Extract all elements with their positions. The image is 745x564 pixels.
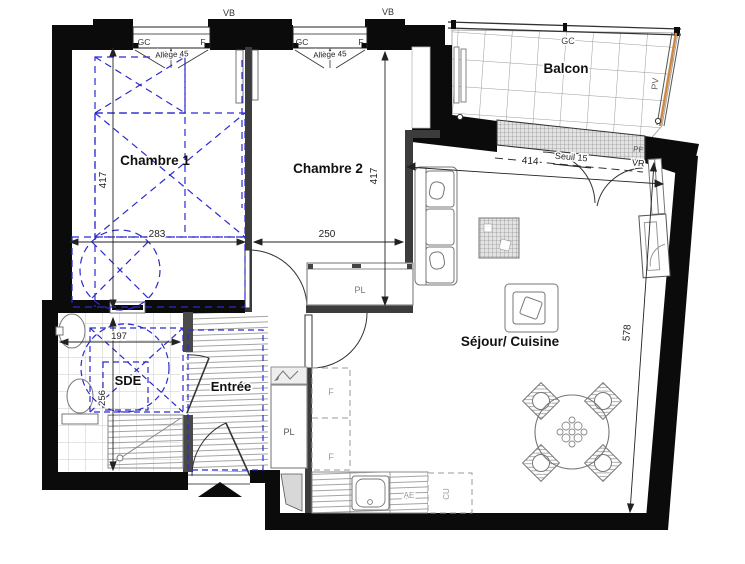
shower-drain	[117, 455, 123, 461]
dining-set	[523, 383, 622, 482]
dining-table	[535, 395, 609, 469]
dim-sde-width: 197	[111, 331, 127, 342]
floor-plan-page: VB VB GC F GC F Allège 45 Allège 45 Balc…	[0, 0, 745, 564]
closet-chambre2-label: PL	[354, 285, 365, 295]
dim-chambre2-height: 417	[369, 167, 380, 184]
room-label-balcon: Balcon	[543, 61, 588, 76]
tall-cabinet	[639, 214, 670, 278]
window2-f-label: F	[358, 37, 363, 47]
coat-rack	[271, 367, 307, 384]
vb-label-2: VB	[382, 7, 394, 17]
allege-label-2: Allège 45	[313, 49, 347, 60]
sejour-furniture	[415, 159, 670, 332]
dim-sejour-width: 414	[521, 155, 539, 167]
dim-chambre1-height: 417	[98, 171, 109, 188]
french-door-right	[597, 168, 643, 206]
window1-f-label: F	[200, 37, 205, 47]
room-label-sde: SDE	[115, 373, 142, 388]
room-label-sejour: Séjour/ Cuisine	[461, 334, 560, 349]
room-label-chambre2: Chambre 2	[293, 161, 363, 176]
room-label-chambre1: Chambre 1	[120, 153, 190, 168]
closet-entree-label: PL	[283, 427, 294, 437]
seuil-label: Seuil 15	[555, 151, 588, 164]
door-leaf-sejour	[305, 315, 312, 368]
fridge-box-2	[312, 418, 350, 470]
dim-sejour-height: 578	[621, 324, 633, 342]
fridge-label-1: F	[328, 387, 334, 397]
fridge-label-2: F	[328, 452, 334, 462]
door-leaf-chambre2	[245, 250, 250, 308]
pv-label: PV	[650, 77, 661, 90]
balcony-gc-label: GC	[561, 36, 575, 46]
window2-gc-label: GC	[296, 37, 309, 47]
cu-label: CU	[442, 488, 451, 500]
ae-label: AE	[404, 491, 415, 500]
allege-label-1: Allège 45	[155, 49, 189, 60]
floor-plan-drawing: VB VB GC F GC F Allège 45 Allège 45 Balc…	[0, 0, 745, 564]
window-chambre1	[133, 27, 210, 68]
vb-label-1: VB	[223, 8, 235, 18]
dim-chambre1-width: 283	[149, 229, 166, 240]
vr-label: VR	[632, 157, 646, 168]
window-chambre2	[293, 27, 367, 68]
toilet-tank	[62, 414, 98, 424]
pf-label: PF	[633, 145, 644, 155]
entrance-door-opening	[188, 472, 250, 497]
toilet-bowl	[67, 379, 93, 413]
dim-chambre2-width: 250	[319, 229, 336, 240]
window1-gc-label: GC	[138, 37, 151, 47]
dim-sde-height: 256	[97, 390, 108, 406]
room-label-entree: Entrée	[211, 379, 251, 394]
